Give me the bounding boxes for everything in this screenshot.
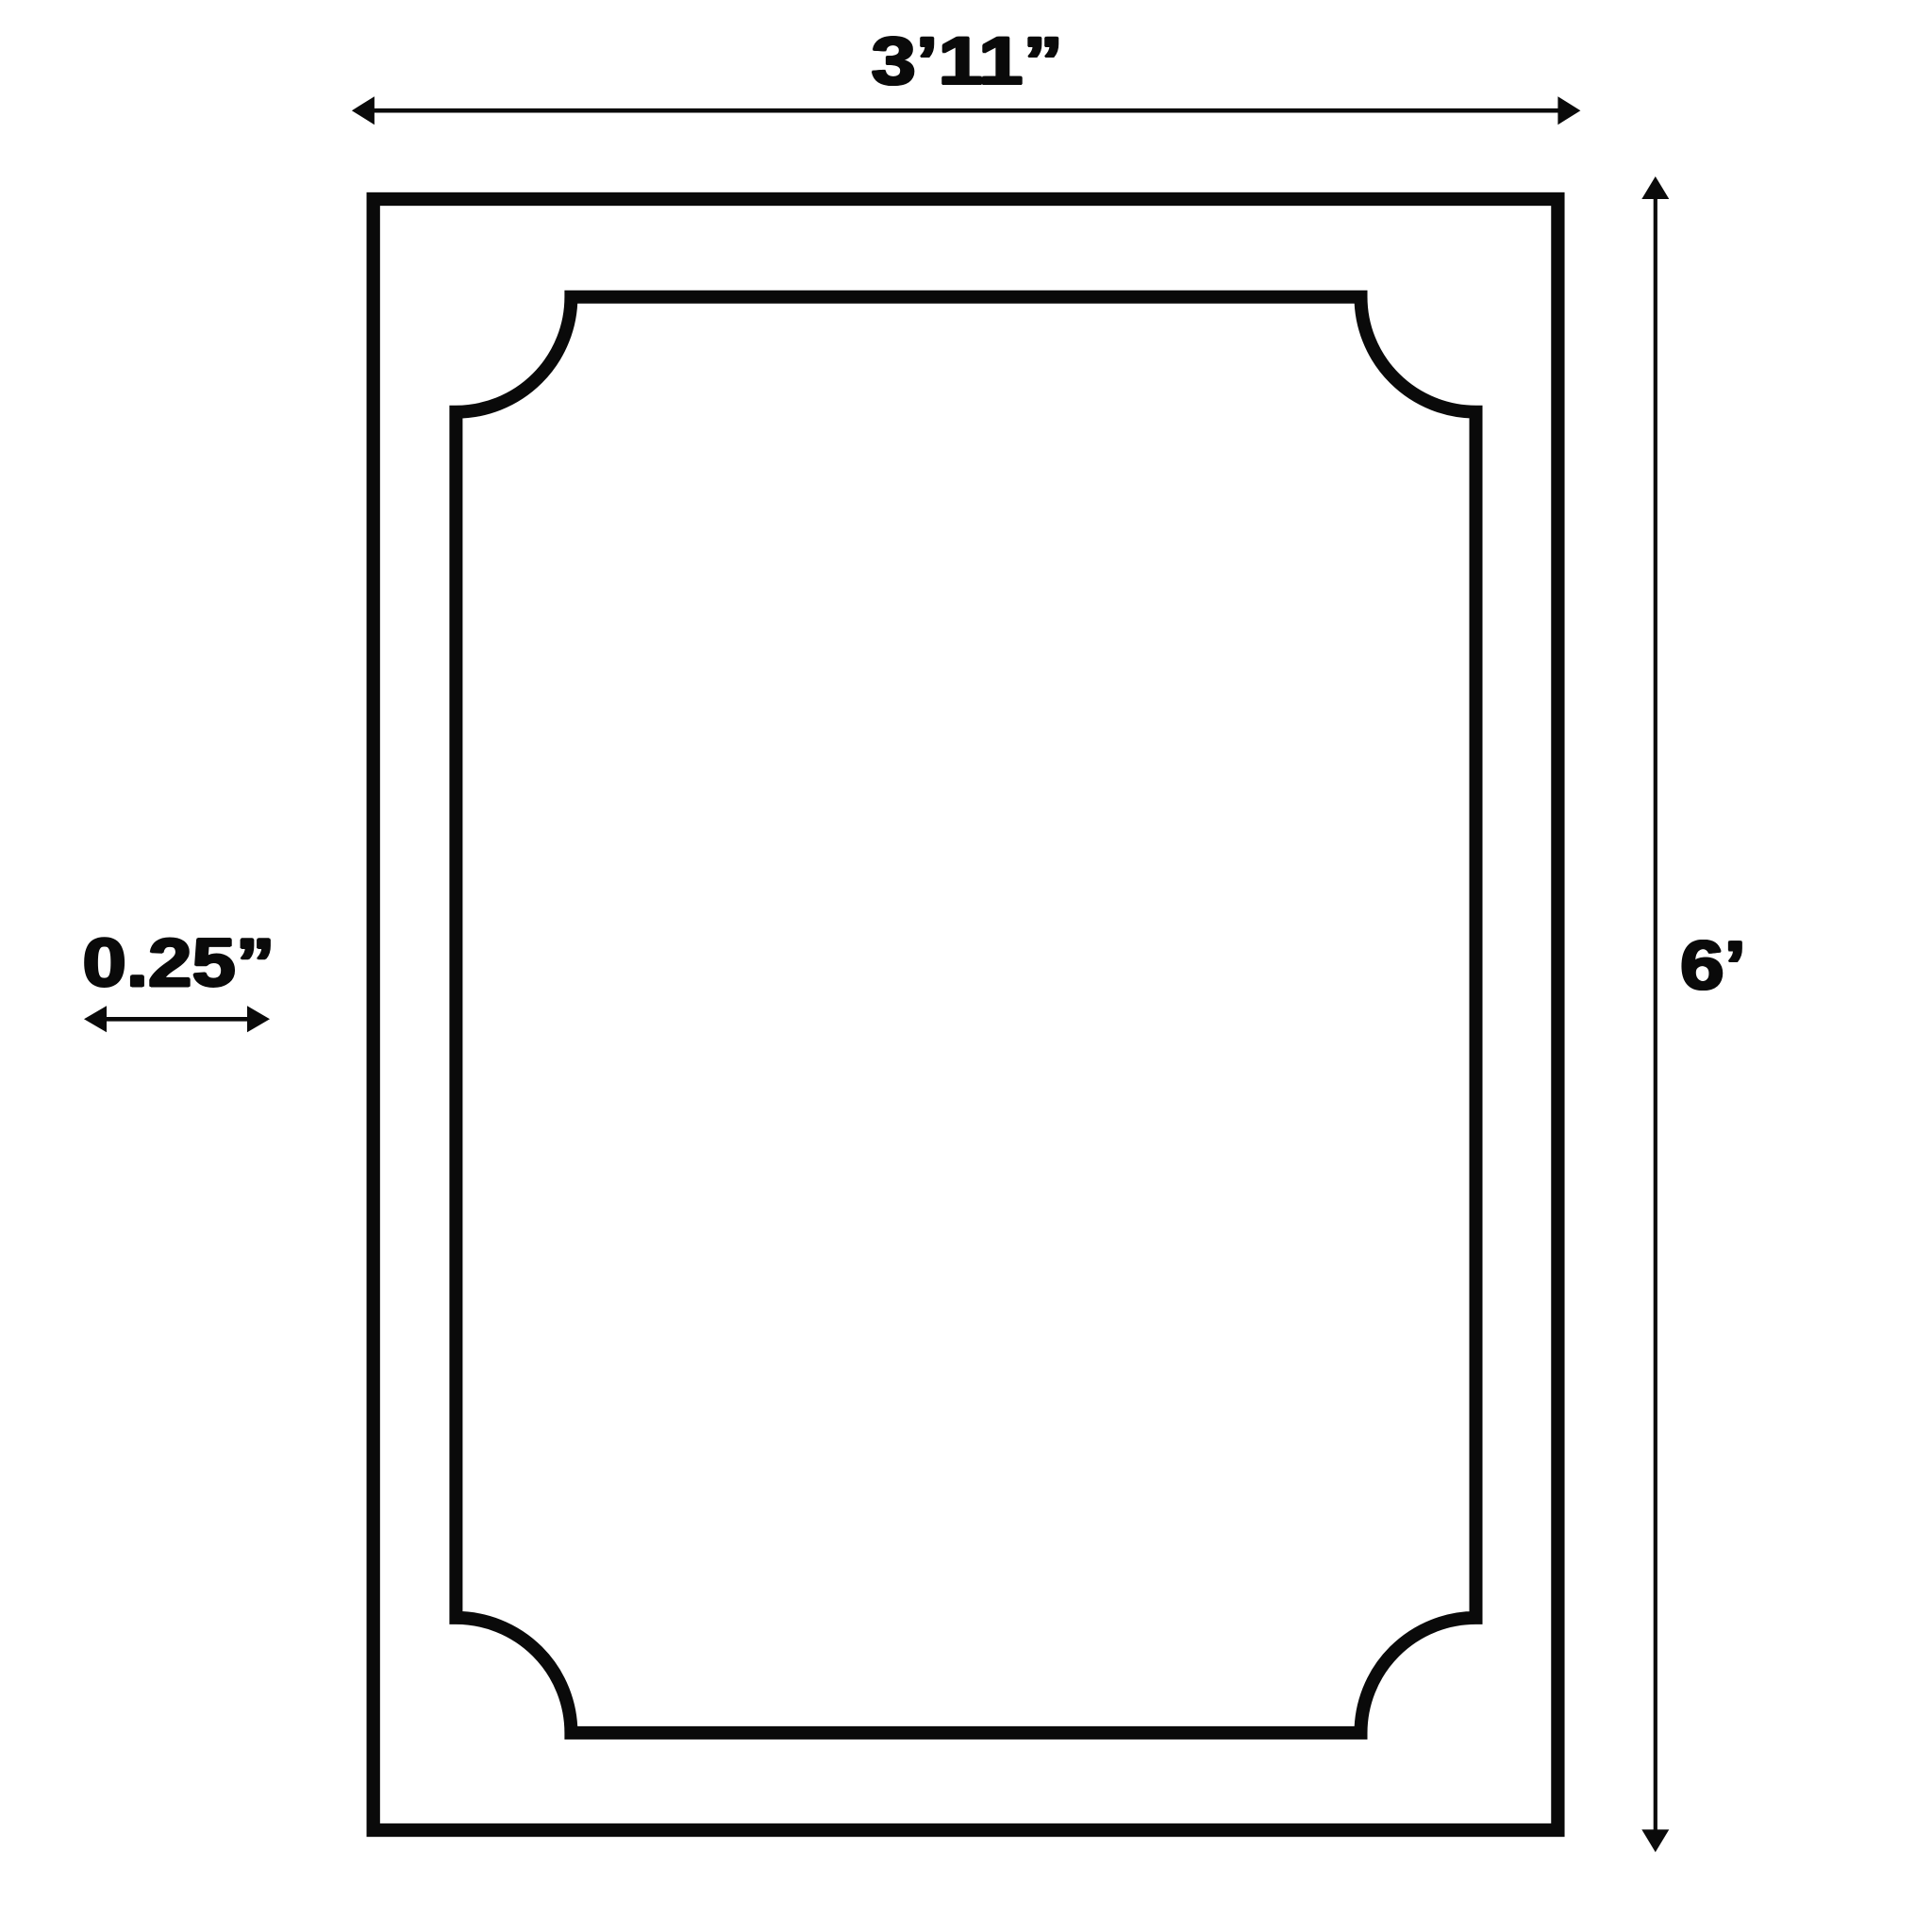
- svg-text:6’: 6’: [1681, 928, 1747, 1005]
- svg-text:3’11”: 3’11”: [873, 25, 1065, 100]
- svg-text:0.25”: 0.25”: [84, 925, 276, 1002]
